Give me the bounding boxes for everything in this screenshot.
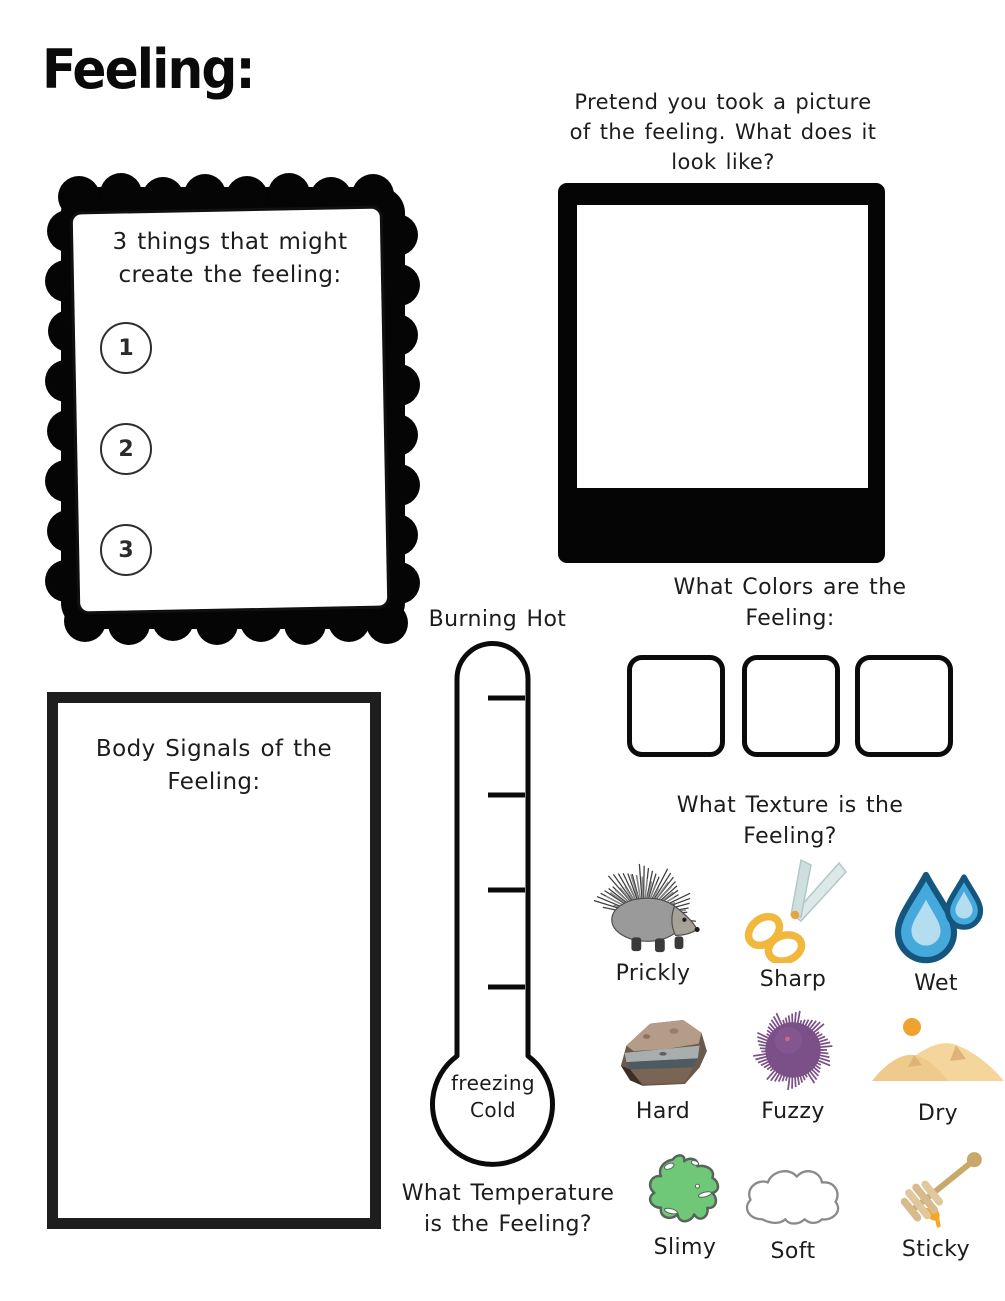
cause-item-3[interactable]: 3 (100, 524, 152, 576)
texture-heading: What Texture is the Feeling? (664, 790, 916, 852)
causes-heading: 3 things that might create the feeling: (100, 226, 360, 291)
honey-dipper-icon (877, 1148, 995, 1233)
number-badge: 3 (100, 524, 152, 576)
cause-item-1[interactable]: 1 (100, 322, 152, 374)
body-signals-heading: Body Signals of the Feeling: (84, 733, 344, 798)
texture-label: Wet (914, 971, 958, 996)
page-title: Feeling: (42, 38, 254, 101)
sand-dunes-icon (872, 1009, 1004, 1097)
feelings-worksheet: Feeling: 3 things that might create the … (0, 0, 1005, 1301)
temperature-question: What Temperature is the Feeling? (388, 1178, 628, 1240)
color-swatch-3[interactable] (855, 655, 953, 757)
texture-option-sharp[interactable]: Sharp (723, 852, 863, 992)
texture-option-soft[interactable]: Soft (723, 1148, 863, 1264)
texture-option-wet[interactable]: Wet (866, 852, 1005, 996)
texture-label: Hard (636, 1099, 690, 1124)
cause-item-2[interactable]: 2 (100, 423, 152, 475)
slime-splat-icon (637, 1148, 733, 1231)
water-drops-icon (888, 861, 984, 967)
rock-icon (608, 1009, 718, 1095)
color-swatch-1[interactable] (627, 655, 725, 757)
texture-label: Soft (770, 1239, 815, 1264)
fuzzy-pompom-icon (745, 1008, 841, 1095)
thermometer-cold-label: freezing Cold (437, 1070, 549, 1124)
number-badge: 2 (100, 423, 152, 475)
color-swatch-2[interactable] (742, 655, 840, 757)
texture-label: Sticky (902, 1237, 970, 1262)
texture-label: Dry (918, 1101, 958, 1126)
texture-option-dry[interactable]: Dry (868, 1008, 1005, 1126)
colors-heading: What Colors are the Feeling: (664, 572, 916, 634)
scissors-icon (731, 857, 855, 963)
picture-prompt: Pretend you took a picture of the feelin… (560, 88, 886, 177)
texture-option-fuzzy[interactable]: Fuzzy (723, 1008, 863, 1124)
texture-label: Sharp (760, 967, 826, 992)
texture-label: Slimy (654, 1235, 717, 1260)
photo-area[interactable] (577, 205, 868, 488)
texture-option-sticky[interactable]: Sticky (866, 1148, 1005, 1262)
texture-label: Prickly (616, 961, 691, 986)
texture-label: Fuzzy (761, 1099, 825, 1124)
cloud-icon (735, 1159, 851, 1235)
polaroid-frame (558, 183, 885, 563)
number-badge: 1 (100, 322, 152, 374)
